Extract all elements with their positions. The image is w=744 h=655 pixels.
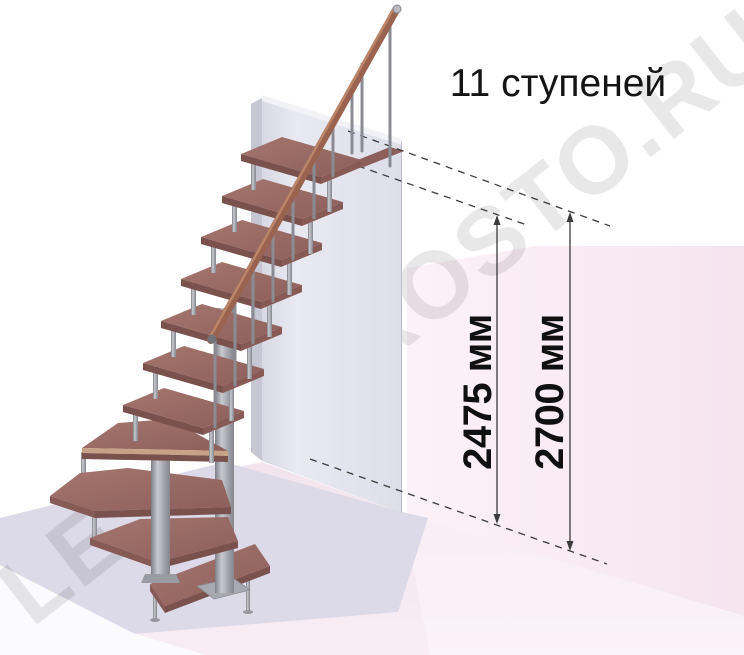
leg-foot [243, 610, 253, 614]
support-post [287, 263, 292, 295]
dimension-label-2475: 2475 мм [456, 314, 500, 470]
leg-foot [150, 618, 160, 622]
handrail-top-cap [393, 5, 401, 13]
staircase-diagram: LE ROSTO.RU 2475 мм 2700 мм 11 ступеней [0, 0, 744, 655]
support-post [209, 431, 214, 463]
diagram-canvas: LE ROSTO.RU 2475 мм 2700 мм 11 ступеней [0, 0, 744, 655]
front-column-foot [141, 574, 180, 583]
dimension-label-2700: 2700 мм [528, 314, 572, 470]
front-column [151, 452, 170, 580]
support-post [327, 180, 332, 212]
page-title: 11 ступеней [450, 62, 666, 105]
handrail-end-connector [208, 335, 217, 344]
support-post [229, 389, 234, 421]
support-post [308, 222, 313, 254]
support-post [247, 347, 252, 379]
support-post [267, 305, 272, 337]
